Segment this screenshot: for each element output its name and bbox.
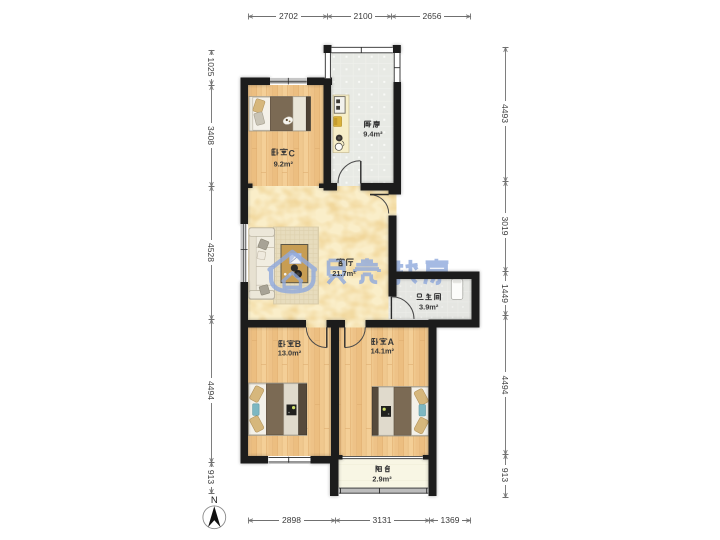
svg-text:21.7m²: 21.7m²	[332, 269, 356, 278]
svg-text:2702: 2702	[279, 11, 298, 21]
svg-text:2656: 2656	[423, 11, 442, 21]
svg-text:4493: 4493	[500, 104, 510, 123]
svg-text:2898: 2898	[282, 515, 301, 525]
svg-text:4494: 4494	[206, 381, 216, 400]
svg-text:3131: 3131	[373, 515, 392, 525]
svg-text:14.1m²: 14.1m²	[371, 346, 395, 355]
svg-text:1025: 1025	[206, 58, 216, 77]
svg-text:13.0m²: 13.0m²	[278, 349, 302, 358]
svg-text:9.4m²: 9.4m²	[363, 130, 383, 139]
svg-text:2100: 2100	[354, 11, 373, 21]
svg-text:1369: 1369	[441, 515, 460, 525]
svg-text:3019: 3019	[500, 217, 510, 236]
svg-text:3408: 3408	[206, 126, 216, 145]
svg-text:4528: 4528	[206, 243, 216, 262]
svg-text:2.9m²: 2.9m²	[372, 475, 392, 484]
svg-text:1449: 1449	[500, 284, 510, 303]
svg-text:913: 913	[500, 468, 510, 482]
svg-text:9.2m²: 9.2m²	[274, 160, 294, 169]
svg-text:N: N	[211, 495, 218, 506]
svg-text:913: 913	[206, 470, 216, 484]
svg-text:4494: 4494	[500, 376, 510, 395]
svg-text:3.9m²: 3.9m²	[419, 302, 439, 311]
svg-text:C: C	[289, 148, 296, 158]
